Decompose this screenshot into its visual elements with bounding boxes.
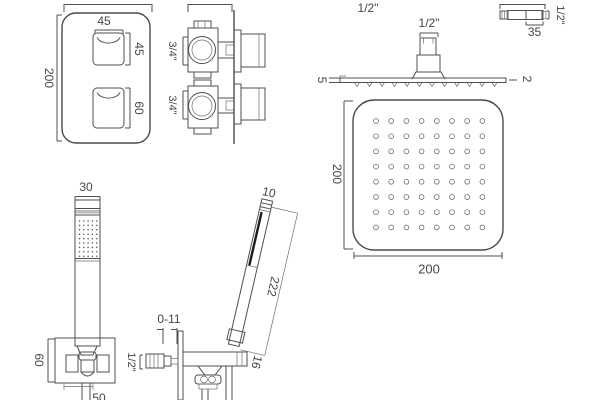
lower-port-label: 3/4" xyxy=(166,95,178,114)
valve-front-top-dimension xyxy=(64,5,152,13)
lower-handle xyxy=(241,88,265,120)
valve-upper-button-height-label: 45 xyxy=(132,42,146,56)
holder-arm xyxy=(183,352,247,366)
adjustment-label: 0-11 xyxy=(157,312,180,326)
wand-head-width-label: 10 xyxy=(261,184,277,201)
shower-head-side-view: 1/2" 1/2" 5 2 xyxy=(315,1,534,86)
handset-wand-side: 10 222 xyxy=(225,184,302,356)
valve-upper-body xyxy=(188,28,218,72)
head-connector-label: 1/2" xyxy=(419,16,440,30)
outlet-knob xyxy=(146,354,164,368)
hose-nut xyxy=(195,375,221,384)
socket-size-label: 16 xyxy=(248,354,265,371)
upper-escutcheon xyxy=(234,30,241,72)
upper-port-label: 3/4" xyxy=(166,41,178,60)
nozzle-grid xyxy=(374,119,485,230)
valve-front-view: 200 45 45 60 xyxy=(42,5,152,144)
hose-lines xyxy=(226,366,232,400)
valve-side-view: 3/4" 3/4" xyxy=(166,5,265,145)
union-top-dimension xyxy=(500,5,545,10)
valve-front-height-label: 200 xyxy=(42,68,56,88)
holder-wall-plate xyxy=(178,331,183,400)
holder-bottom-label: 50 xyxy=(92,391,106,400)
wand-length-label: 222 xyxy=(264,275,282,298)
handset-front-view: 30 60 50 xyxy=(32,180,115,400)
valve-button-width-label: 45 xyxy=(97,14,111,28)
technical-drawing-page: 200 45 45 60 xyxy=(0,0,600,400)
head-height-label: 200 xyxy=(330,164,344,184)
handset-wand-front xyxy=(75,200,100,346)
union-length-label: 35 xyxy=(528,25,542,39)
head-width-label: 200 xyxy=(418,261,440,276)
handset-width-label: 30 xyxy=(79,180,93,194)
wand-shading xyxy=(248,212,263,266)
shower-head-bottom-view: 200 200 xyxy=(330,100,503,276)
upper-handle xyxy=(241,34,265,67)
valve-side-top-dimension xyxy=(188,5,232,13)
head-plate-nozzles xyxy=(355,83,498,87)
handset-cap-band xyxy=(76,210,100,214)
handset-side-view: 0-11 1/2" 16 10 xyxy=(125,184,302,400)
handset-spray-face xyxy=(79,220,98,257)
plate-edge-left-label: 5 xyxy=(315,77,329,84)
lower-escutcheon xyxy=(234,84,241,124)
outlet-size-label: 1/2" xyxy=(125,352,137,371)
wall-union-view: 1/2" 35 xyxy=(500,5,566,40)
head-inlet-label: 1/2" xyxy=(358,1,379,15)
head-plate-profile xyxy=(340,78,506,83)
union-thread-label: 1/2" xyxy=(554,5,566,24)
head-connector-stem xyxy=(420,38,436,55)
holder-height-label: 60 xyxy=(32,353,46,367)
valve-lower-button-height-label: 60 xyxy=(132,101,146,115)
plate-edge-right-label: 2 xyxy=(520,76,534,83)
union-section-hatch xyxy=(526,11,542,20)
technical-drawing: 200 45 45 60 xyxy=(0,0,600,400)
